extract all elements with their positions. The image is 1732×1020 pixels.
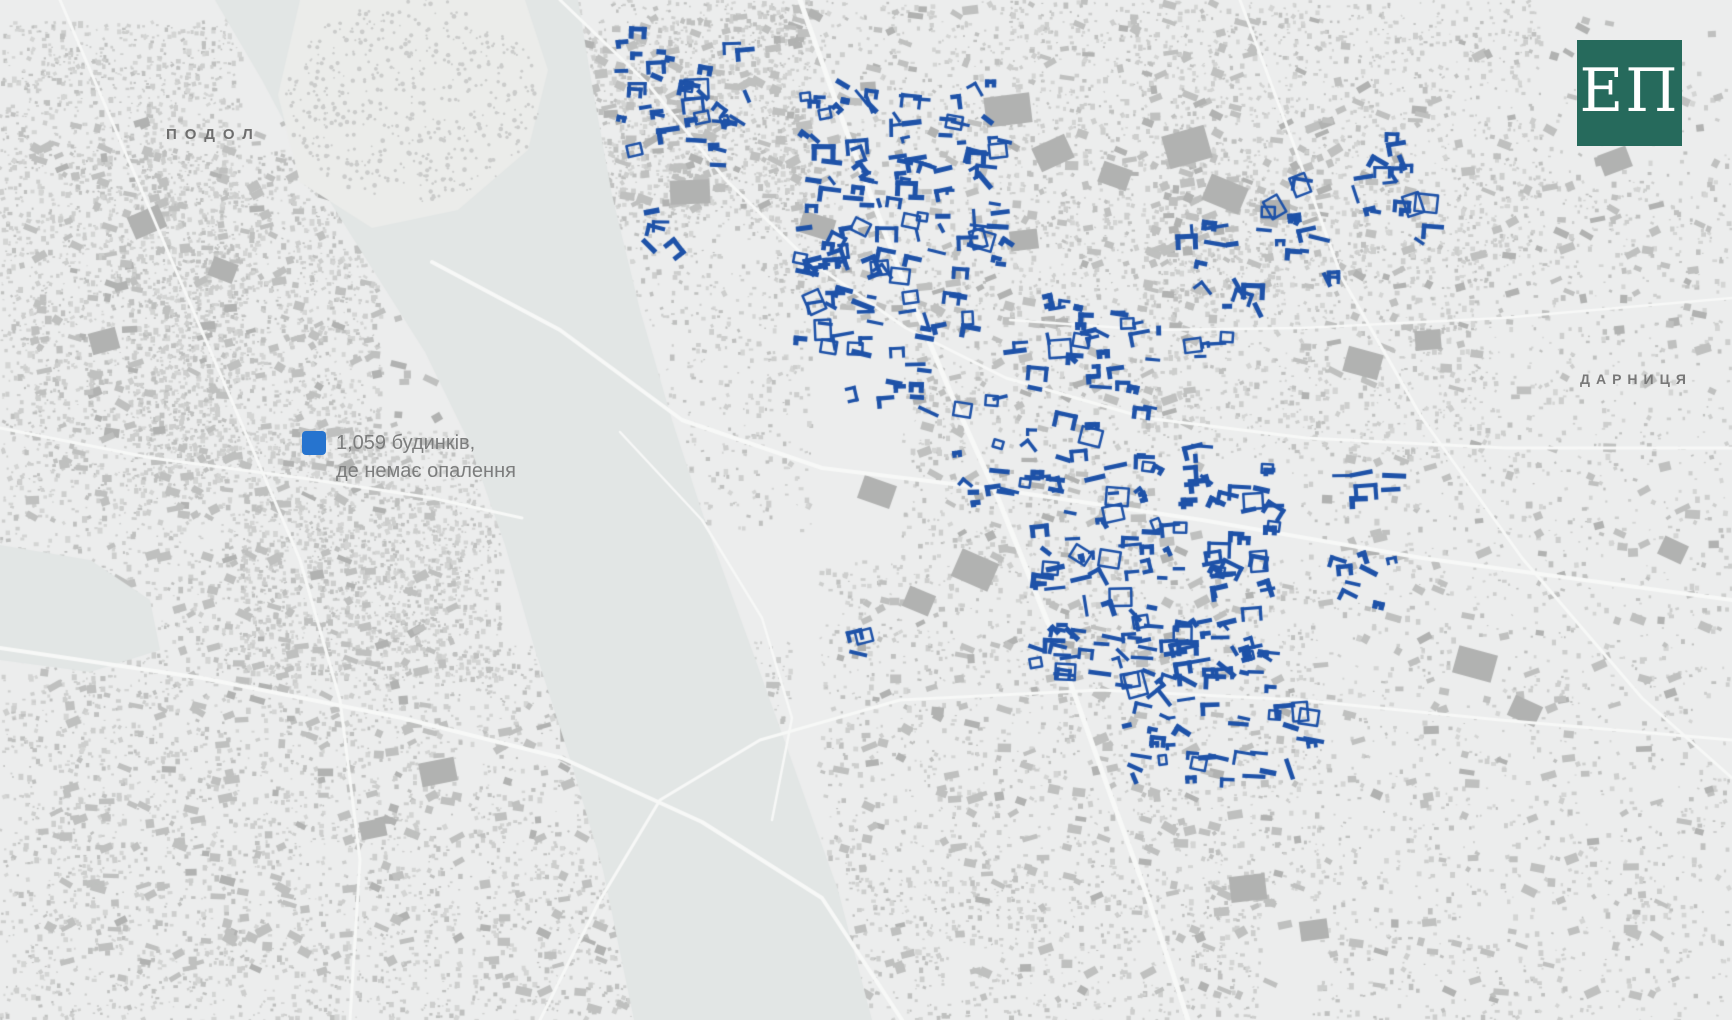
city-map-canvas [0, 0, 1732, 1020]
legend-count-line: 1,059 будинків, [336, 429, 516, 457]
district-label-podol: ПОДОЛ [166, 126, 261, 143]
legend-text: 1,059 будинків, де немає опалення [336, 429, 516, 485]
ep-logo-text: ЕП [1579, 61, 1679, 125]
district-label-darnytsia: ДАРНИЦЯ [1580, 371, 1692, 387]
ep-logo[interactable]: ЕП [1577, 40, 1682, 146]
map-infographic: ПОДОЛ ДАРНИЦЯ 1,059 будинків, де немає о… [0, 0, 1732, 1020]
legend-desc-line: де немає опалення [336, 457, 516, 485]
map-legend: 1,059 будинків, де немає опалення [302, 429, 516, 485]
legend-color-swatch [302, 431, 326, 455]
